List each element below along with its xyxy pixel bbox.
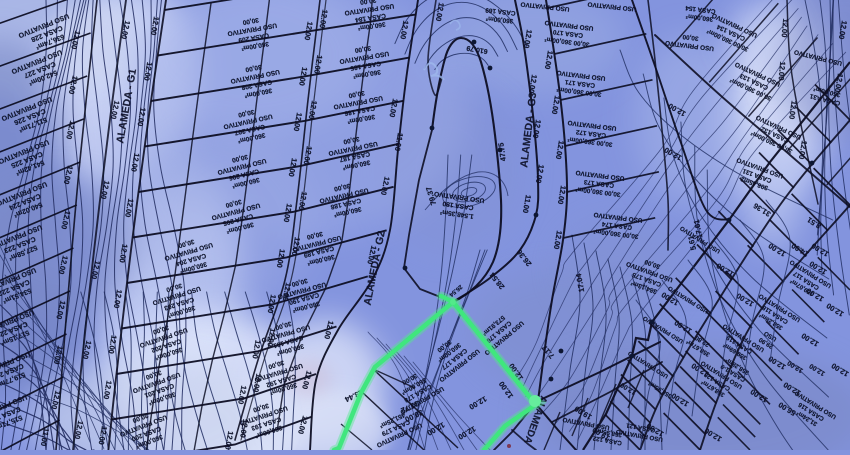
svg-text:12.00: 12.00 [777,61,788,80]
svg-text:12.00: 12.00 [780,18,791,37]
